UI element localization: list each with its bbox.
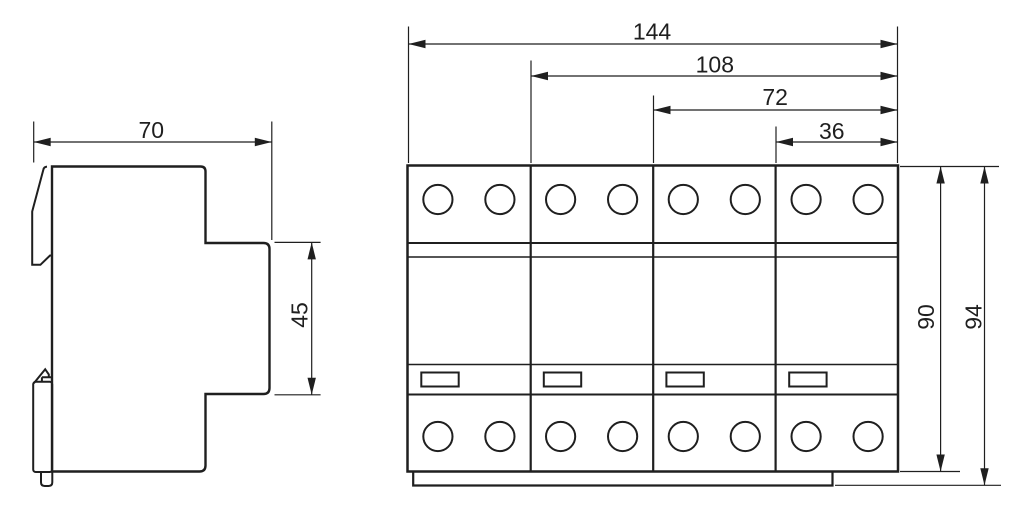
svg-text:72: 72 — [762, 84, 788, 110]
svg-text:144: 144 — [633, 19, 672, 45]
svg-text:108: 108 — [696, 52, 734, 78]
svg-text:36: 36 — [819, 118, 845, 144]
svg-text:94: 94 — [961, 304, 987, 330]
svg-text:45: 45 — [287, 302, 313, 328]
svg-text:90: 90 — [913, 304, 939, 330]
svg-text:70: 70 — [139, 117, 165, 143]
